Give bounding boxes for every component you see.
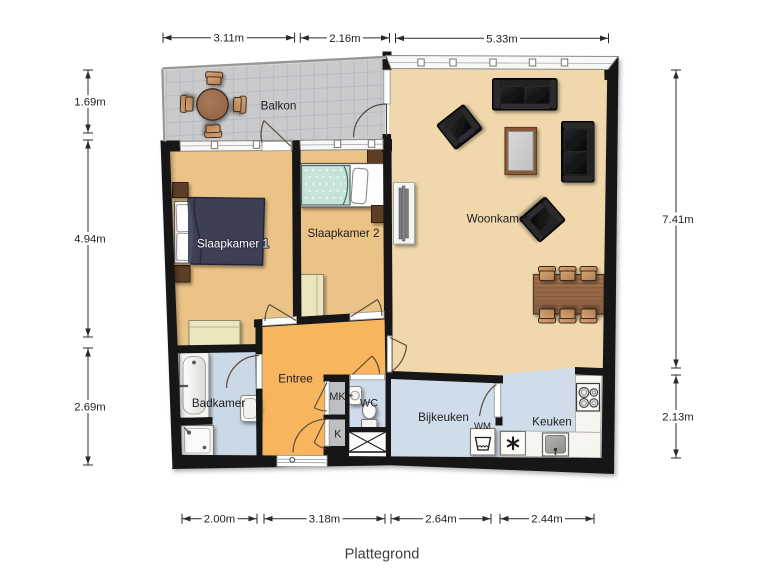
svg-text:5.33m: 5.33m: [486, 33, 517, 45]
svg-text:Bijkeuken: Bijkeuken: [418, 411, 469, 424]
svg-text:7.41m: 7.41m: [662, 214, 693, 226]
svg-text:3.18m: 3.18m: [309, 514, 340, 526]
svg-text:WM: WM: [474, 421, 491, 432]
svg-text:2.13m: 2.13m: [662, 412, 693, 424]
svg-text:1.69m: 1.69m: [74, 97, 105, 109]
svg-text:2.69m: 2.69m: [74, 402, 105, 414]
svg-text:2.00m: 2.00m: [204, 514, 235, 526]
svg-text:K: K: [334, 428, 342, 440]
svg-text:Slaapkamer 2: Slaapkamer 2: [307, 227, 379, 240]
svg-text:Plattegrond: Plattegrond: [345, 547, 420, 563]
svg-text:2.16m: 2.16m: [329, 33, 360, 45]
svg-text:WC: WC: [360, 397, 378, 409]
svg-text:Entree: Entree: [278, 372, 312, 385]
svg-text:Balkon: Balkon: [261, 99, 297, 112]
svg-text:Slaapkamer 1: Slaapkamer 1: [197, 237, 269, 250]
svg-text:MK: MK: [329, 391, 346, 403]
svg-text:2.44m: 2.44m: [531, 514, 562, 526]
svg-text:2.64m: 2.64m: [425, 514, 456, 526]
svg-text:3.11m: 3.11m: [214, 33, 245, 45]
svg-text:4.94m: 4.94m: [74, 234, 105, 246]
svg-text:Badkamer: Badkamer: [192, 397, 245, 410]
svg-text:Woonkamer: Woonkamer: [467, 213, 530, 226]
svg-text:Keuken: Keuken: [532, 416, 572, 429]
